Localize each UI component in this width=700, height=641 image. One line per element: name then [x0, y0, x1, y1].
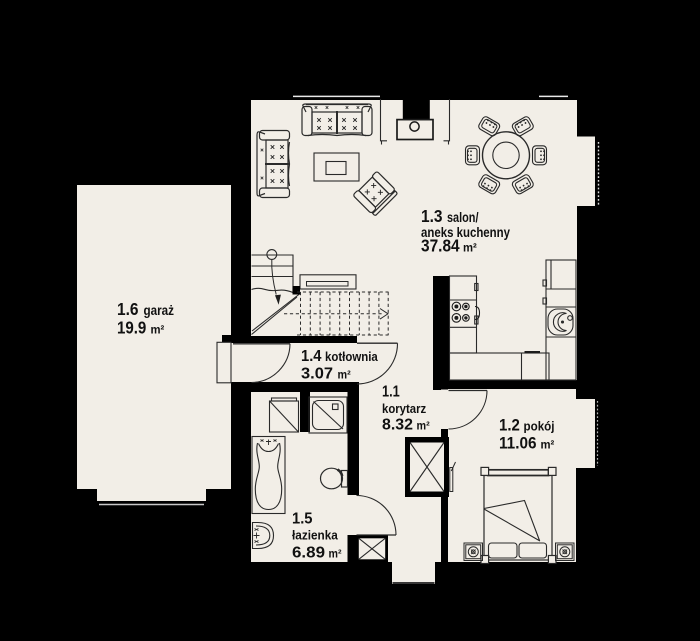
svg-text:m²: m²: [151, 323, 165, 337]
svg-text:1.6: 1.6: [117, 299, 139, 319]
svg-text:8.32: 8.32: [382, 417, 413, 434]
svg-text:m²: m²: [338, 370, 351, 382]
svg-text:łazienka: łazienka: [292, 528, 338, 543]
svg-text:m²: m²: [463, 241, 477, 255]
svg-text:pokój: pokój: [524, 419, 555, 434]
svg-text:1.4: 1.4: [301, 348, 322, 365]
svg-text:19.9: 19.9: [117, 318, 147, 338]
svg-text:6.89: 6.89: [292, 545, 325, 562]
svg-text:garaż: garaż: [144, 303, 175, 318]
svg-text:37.84: 37.84: [421, 236, 460, 256]
svg-text:3.07: 3.07: [301, 366, 333, 383]
svg-text:korytarz: korytarz: [382, 401, 427, 416]
svg-text:1.3: 1.3: [421, 206, 443, 226]
svg-text:kotłownia: kotłownia: [325, 349, 378, 364]
svg-text:11.06: 11.06: [499, 435, 537, 453]
svg-text:m²: m²: [417, 421, 430, 433]
svg-text:m²: m²: [329, 549, 342, 561]
svg-text:1.2: 1.2: [499, 417, 520, 435]
svg-text:1.5: 1.5: [292, 511, 313, 528]
svg-text:salon/: salon/: [447, 210, 479, 225]
svg-text:1.1: 1.1: [382, 384, 400, 401]
svg-text:m²: m²: [541, 438, 555, 452]
